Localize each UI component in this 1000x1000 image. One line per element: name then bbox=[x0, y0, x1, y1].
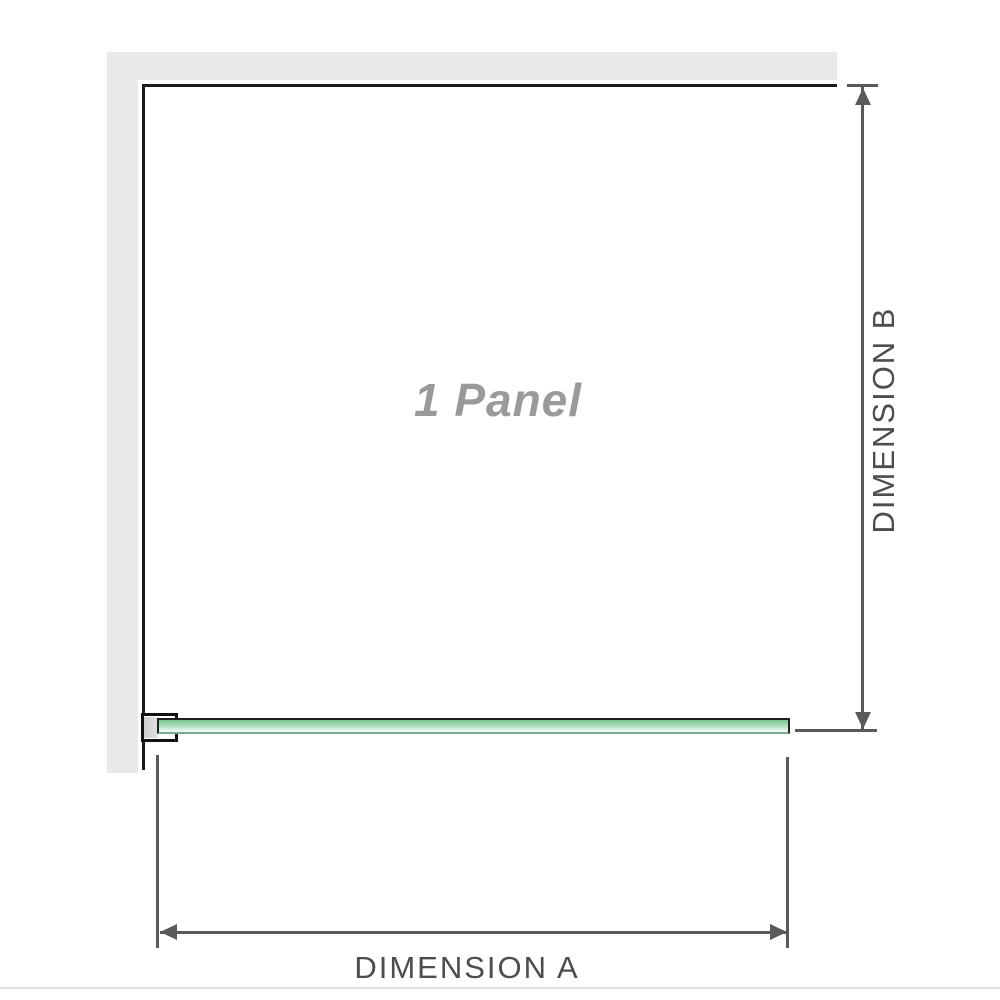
panel-left-border bbox=[142, 84, 145, 770]
arrow-left-icon bbox=[160, 924, 177, 940]
arrow-right-icon bbox=[770, 924, 787, 940]
dimension-b-label: DIMENSION B bbox=[866, 305, 902, 535]
dimension-b-bottom-tick bbox=[795, 729, 877, 732]
panel-count-label: 1 Panel bbox=[398, 370, 598, 430]
panel-top-border bbox=[142, 84, 837, 87]
glass-panel bbox=[157, 718, 790, 734]
diagram-canvas: 1 Panel DIMENSION B DIMENSION A bbox=[0, 0, 1000, 1000]
dimension-a-left-extension-line bbox=[156, 755, 159, 948]
dimension-a-label: DIMENSION A bbox=[317, 950, 617, 986]
arrow-up-icon bbox=[855, 88, 871, 105]
arrow-down-icon bbox=[855, 712, 871, 729]
dimension-a-right-extension-line bbox=[786, 757, 789, 948]
wall-clamp-pad bbox=[144, 717, 158, 738]
bottom-separator-line bbox=[0, 987, 1000, 989]
wall-left-band bbox=[107, 52, 138, 773]
wall-top-band bbox=[107, 52, 837, 80]
dimension-b-line bbox=[861, 87, 864, 729]
dimension-a-line bbox=[160, 931, 787, 934]
